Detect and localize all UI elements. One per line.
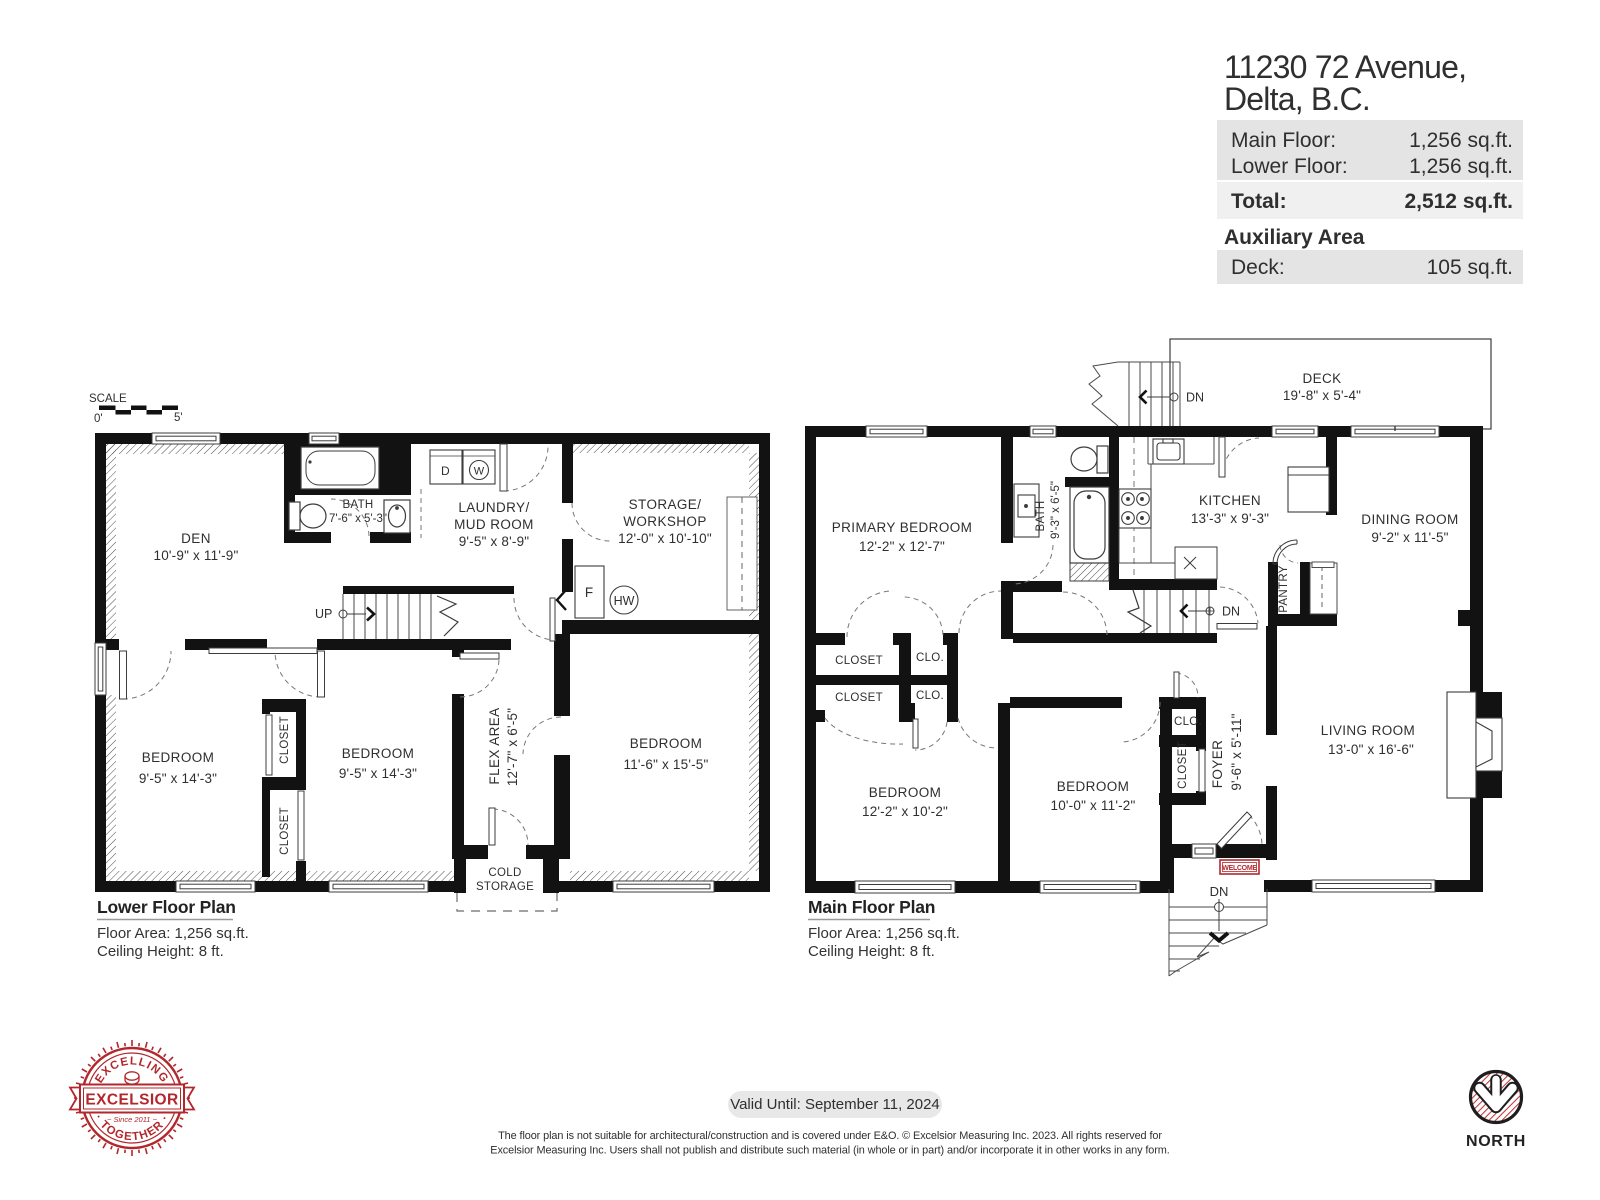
svg-text:LAUNDRY/: LAUNDRY/ bbox=[458, 500, 529, 515]
svg-text:0': 0' bbox=[94, 413, 103, 425]
svg-text:10'-0" x 11'-2": 10'-0" x 11'-2" bbox=[1050, 798, 1135, 813]
svg-text:Floor Area: 1,256 sq.ft.: Floor Area: 1,256 sq.ft. bbox=[808, 925, 960, 942]
svg-text:11'-6" x 15'-5": 11'-6" x 15'-5" bbox=[623, 757, 708, 772]
svg-text:9'-5" x 8'-9": 9'-5" x 8'-9" bbox=[459, 534, 530, 549]
svg-text:EXCELSIOR: EXCELSIOR bbox=[85, 1092, 178, 1109]
svg-text:W: W bbox=[474, 466, 485, 478]
svg-text:BEDROOM: BEDROOM bbox=[1057, 779, 1130, 794]
svg-text:105 sq.ft.: 105 sq.ft. bbox=[1427, 256, 1513, 279]
svg-text:KITCHEN: KITCHEN bbox=[1199, 493, 1261, 508]
svg-text:9'-6" x 5'-11": 9'-6" x 5'-11" bbox=[1229, 713, 1244, 790]
svg-text:PRIMARY BEDROOM: PRIMARY BEDROOM bbox=[832, 520, 973, 535]
svg-text:12'-2" x 10'-2": 12'-2" x 10'-2" bbox=[862, 804, 948, 819]
svg-text:CLOSET: CLOSET bbox=[279, 807, 291, 855]
svg-text:STORAGE: STORAGE bbox=[476, 881, 534, 893]
svg-text:HW: HW bbox=[614, 594, 635, 608]
svg-text:BATH: BATH bbox=[342, 499, 373, 511]
svg-text:12'-7" x 6'-5": 12'-7" x 6'-5" bbox=[505, 708, 520, 786]
svg-text:Valid Until: September 11, 202: Valid Until: September 11, 2024 bbox=[730, 1096, 940, 1113]
svg-text:9'-5" x 14'-3": 9'-5" x 14'-3" bbox=[339, 766, 417, 781]
svg-text:Lower Floor:: Lower Floor: bbox=[1231, 155, 1348, 178]
svg-text:CLO.: CLO. bbox=[916, 690, 944, 702]
svg-text:Auxiliary Area: Auxiliary Area bbox=[1224, 226, 1365, 249]
svg-text:DN: DN bbox=[1210, 884, 1229, 899]
svg-text:Ceiling Height: 8 ft.: Ceiling Height: 8 ft. bbox=[808, 943, 935, 960]
svg-text:Main Floor:: Main Floor: bbox=[1231, 129, 1336, 152]
svg-text:19'-8" x 5'-4": 19'-8" x 5'-4" bbox=[1283, 388, 1361, 403]
svg-text:BEDROOM: BEDROOM bbox=[142, 750, 215, 765]
svg-text:9'-2" x 11'-5": 9'-2" x 11'-5" bbox=[1371, 530, 1448, 545]
svg-text:5': 5' bbox=[174, 412, 183, 424]
svg-text:13'-3" x 9'-3": 13'-3" x 9'-3" bbox=[1191, 511, 1269, 526]
svg-text:1,256 sq.ft.: 1,256 sq.ft. bbox=[1409, 129, 1513, 152]
svg-text:The floor plan is not suitable: The floor plan is not suitable for archi… bbox=[498, 1130, 1162, 1142]
svg-text:WELCOME: WELCOME bbox=[1222, 865, 1257, 872]
svg-text:Floor Area: 1,256 sq.ft.: Floor Area: 1,256 sq.ft. bbox=[97, 925, 249, 942]
svg-text:D: D bbox=[441, 464, 450, 478]
svg-text:WORKSHOP: WORKSHOP bbox=[623, 514, 706, 529]
svg-text:Excelsior Measuring Inc. Users: Excelsior Measuring Inc. Users shall not… bbox=[490, 1145, 1169, 1157]
svg-text:DEN: DEN bbox=[181, 531, 211, 546]
svg-text:10'-9" x 11'-9": 10'-9" x 11'-9" bbox=[153, 548, 238, 563]
svg-text:13'-0" x 16'-6": 13'-0" x 16'-6" bbox=[1328, 742, 1414, 757]
svg-text:12'-0" x 10'-10": 12'-0" x 10'-10" bbox=[618, 531, 712, 546]
svg-text:12'-2" x 12'-7": 12'-2" x 12'-7" bbox=[859, 539, 945, 554]
svg-text:Lower Floor Plan: Lower Floor Plan bbox=[97, 897, 236, 917]
svg-text:Ceiling Height: 8 ft.: Ceiling Height: 8 ft. bbox=[97, 943, 224, 960]
svg-text:BEDROOM: BEDROOM bbox=[630, 736, 703, 751]
svg-text:11230 72 Avenue,: 11230 72 Avenue, bbox=[1224, 49, 1466, 85]
svg-text:2,512 sq.ft.: 2,512 sq.ft. bbox=[1404, 190, 1513, 213]
svg-text:LIVING ROOM: LIVING ROOM bbox=[1321, 723, 1415, 738]
svg-text:DN: DN bbox=[1222, 605, 1240, 619]
svg-text:NORTH: NORTH bbox=[1466, 1133, 1526, 1150]
svg-text:CLO.: CLO. bbox=[916, 652, 944, 664]
svg-text:CLOSET: CLOSET bbox=[279, 716, 291, 764]
svg-text:1,256 sq.ft.: 1,256 sq.ft. bbox=[1409, 155, 1513, 178]
svg-text:9'-3" x 6'-5": 9'-3" x 6'-5" bbox=[1050, 481, 1062, 539]
svg-text:STORAGE/: STORAGE/ bbox=[629, 497, 702, 512]
svg-text:~ Since 2011 ~: ~ Since 2011 ~ bbox=[107, 1115, 158, 1124]
svg-text:CLO.: CLO. bbox=[1174, 716, 1202, 728]
svg-text:Deck:: Deck: bbox=[1231, 256, 1285, 279]
svg-text:7'-6" x 5'-3": 7'-6" x 5'-3" bbox=[329, 513, 387, 525]
svg-text:DINING ROOM: DINING ROOM bbox=[1361, 512, 1458, 527]
svg-text:CLOSET: CLOSET bbox=[835, 655, 883, 667]
svg-text:FOYER: FOYER bbox=[1210, 740, 1225, 789]
svg-text:PANTRY: PANTRY bbox=[1278, 565, 1290, 612]
svg-text:F: F bbox=[585, 585, 593, 600]
svg-text:Total:: Total: bbox=[1231, 190, 1287, 213]
svg-text:UP: UP bbox=[315, 607, 332, 621]
svg-text:Delta, B.C.: Delta, B.C. bbox=[1224, 81, 1370, 117]
svg-text:SCALE: SCALE bbox=[89, 393, 127, 405]
svg-text:COLD: COLD bbox=[488, 867, 521, 879]
svg-text:DN: DN bbox=[1186, 391, 1204, 405]
svg-text:CLOSET: CLOSET bbox=[835, 692, 883, 704]
svg-text:BEDROOM: BEDROOM bbox=[869, 785, 942, 800]
svg-text:BEDROOM: BEDROOM bbox=[342, 746, 415, 761]
svg-text:CLOSET: CLOSET bbox=[1177, 741, 1189, 789]
svg-text:MUD ROOM: MUD ROOM bbox=[454, 517, 534, 532]
svg-text:Main Floor Plan: Main Floor Plan bbox=[808, 897, 935, 917]
svg-text:FLEX AREA: FLEX AREA bbox=[487, 707, 502, 784]
svg-text:BATH: BATH bbox=[1035, 500, 1047, 531]
svg-text:9'-5" x 14'-3": 9'-5" x 14'-3" bbox=[139, 771, 217, 786]
svg-text:DECK: DECK bbox=[1302, 371, 1341, 386]
